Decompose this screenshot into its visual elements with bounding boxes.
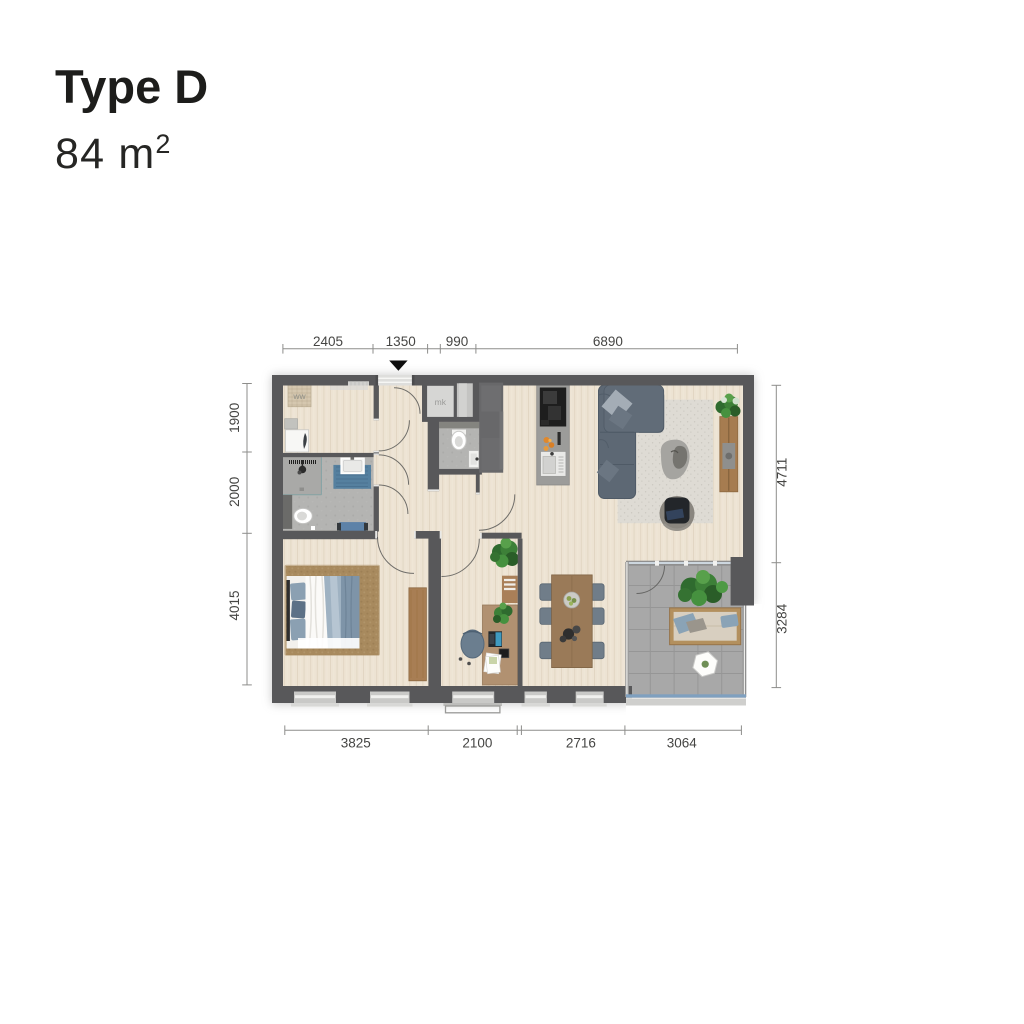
svg-text:ww: ww	[292, 391, 306, 401]
svg-text:2405: 2405	[313, 334, 343, 349]
svg-text:3064: 3064	[667, 736, 698, 751]
svg-text:3284: 3284	[775, 603, 790, 634]
svg-text:4711: 4711	[775, 458, 790, 487]
svg-text:2716: 2716	[566, 736, 596, 751]
svg-text:84 m2: 84 m2	[55, 129, 172, 178]
svg-text:Type D: Type D	[55, 60, 208, 113]
svg-text:4015: 4015	[227, 590, 242, 620]
svg-text:mk: mk	[435, 397, 447, 407]
svg-text:3825: 3825	[341, 736, 371, 751]
svg-text:6890: 6890	[593, 334, 623, 349]
svg-text:1900: 1900	[227, 403, 242, 433]
svg-text:1350: 1350	[386, 334, 416, 349]
svg-text:990: 990	[446, 334, 469, 349]
svg-text:2100: 2100	[462, 736, 492, 751]
svg-text:2000: 2000	[227, 477, 242, 507]
